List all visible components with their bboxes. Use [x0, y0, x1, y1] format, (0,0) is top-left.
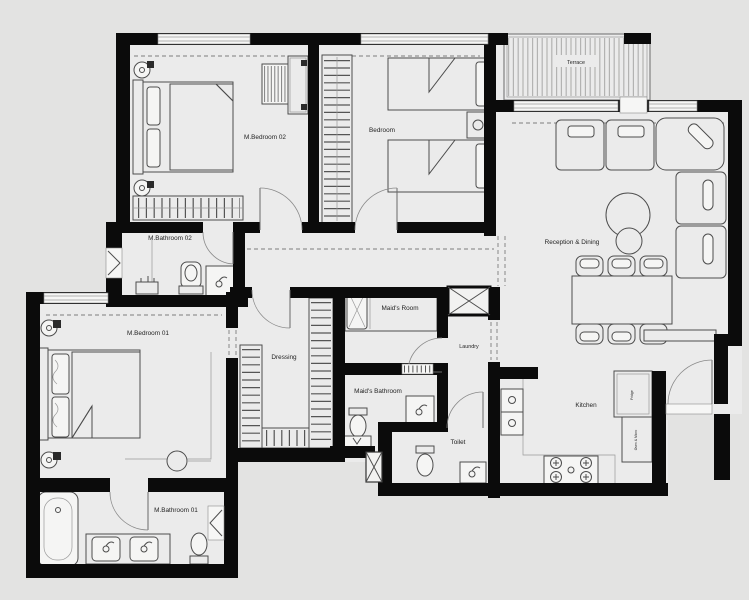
- vent-window: [106, 248, 122, 278]
- floor-plan: M.Bedroom 02 Bedroom Terrace Reception &…: [0, 0, 749, 600]
- room-label-maids-room: Maid's Room: [381, 305, 418, 312]
- double-bed: [38, 348, 140, 440]
- small-shaft: [366, 452, 382, 482]
- console-step: [644, 330, 716, 341]
- room-label-m-bedroom-02: M.Bedroom 02: [244, 134, 286, 141]
- window: [44, 293, 108, 303]
- room-label-m-bedroom-01: M.Bedroom 01: [127, 330, 169, 337]
- room-label-m-bathroom-02: M.Bathroom 02: [148, 235, 192, 242]
- toilet-fixture: [190, 533, 208, 564]
- room-label-bedroom: Bedroom: [369, 127, 395, 134]
- room-label-terrace: Terrace: [567, 60, 585, 66]
- cabinet: [288, 56, 308, 114]
- floor-plan-canvas: M.Bedroom 02 Bedroom Terrace Reception &…: [0, 0, 749, 600]
- room-label-dressing: Dressing: [271, 354, 297, 361]
- single-bed-1: [388, 58, 492, 110]
- window: [649, 101, 697, 111]
- room-label-m-bathroom-01: M.Bathroom 01: [154, 507, 198, 514]
- dining-table: [572, 276, 672, 324]
- toilet-fixture: [179, 262, 203, 294]
- sink: [460, 462, 486, 483]
- stove-burners: [544, 456, 598, 484]
- double-sink-vanity: [86, 534, 170, 564]
- double-bed: [133, 80, 233, 174]
- label-tall-unit: Oven & Micro: [634, 430, 638, 451]
- kitchen-sink: [501, 389, 523, 435]
- maids-bathroom-threshold: [402, 364, 433, 374]
- label-fridge: Fridge: [630, 390, 634, 400]
- vent-shaft: [448, 287, 490, 315]
- room-label-laundry: Laundry: [459, 344, 479, 350]
- room-label-reception-dining: Reception & Dining: [545, 239, 600, 246]
- toilet-fixture: [416, 446, 434, 476]
- single-bed-2: [388, 140, 492, 192]
- toilet-fixture: [349, 408, 367, 437]
- shower: [406, 396, 434, 424]
- room-label-maids-bathroom: Maid's Bathroom: [354, 388, 402, 395]
- window: [158, 34, 250, 44]
- shower-niche: [208, 506, 224, 540]
- room-label-kitchen: Kitchen: [575, 402, 597, 409]
- terrace-door-threshold: [620, 97, 647, 113]
- dresser: [262, 64, 290, 104]
- window: [514, 101, 618, 111]
- closet-hanging-rail: [133, 196, 243, 220]
- bathtub: [38, 492, 78, 566]
- wardrobe: [322, 55, 352, 223]
- room-label-toilet: Toilet: [451, 439, 466, 446]
- window: [361, 34, 488, 44]
